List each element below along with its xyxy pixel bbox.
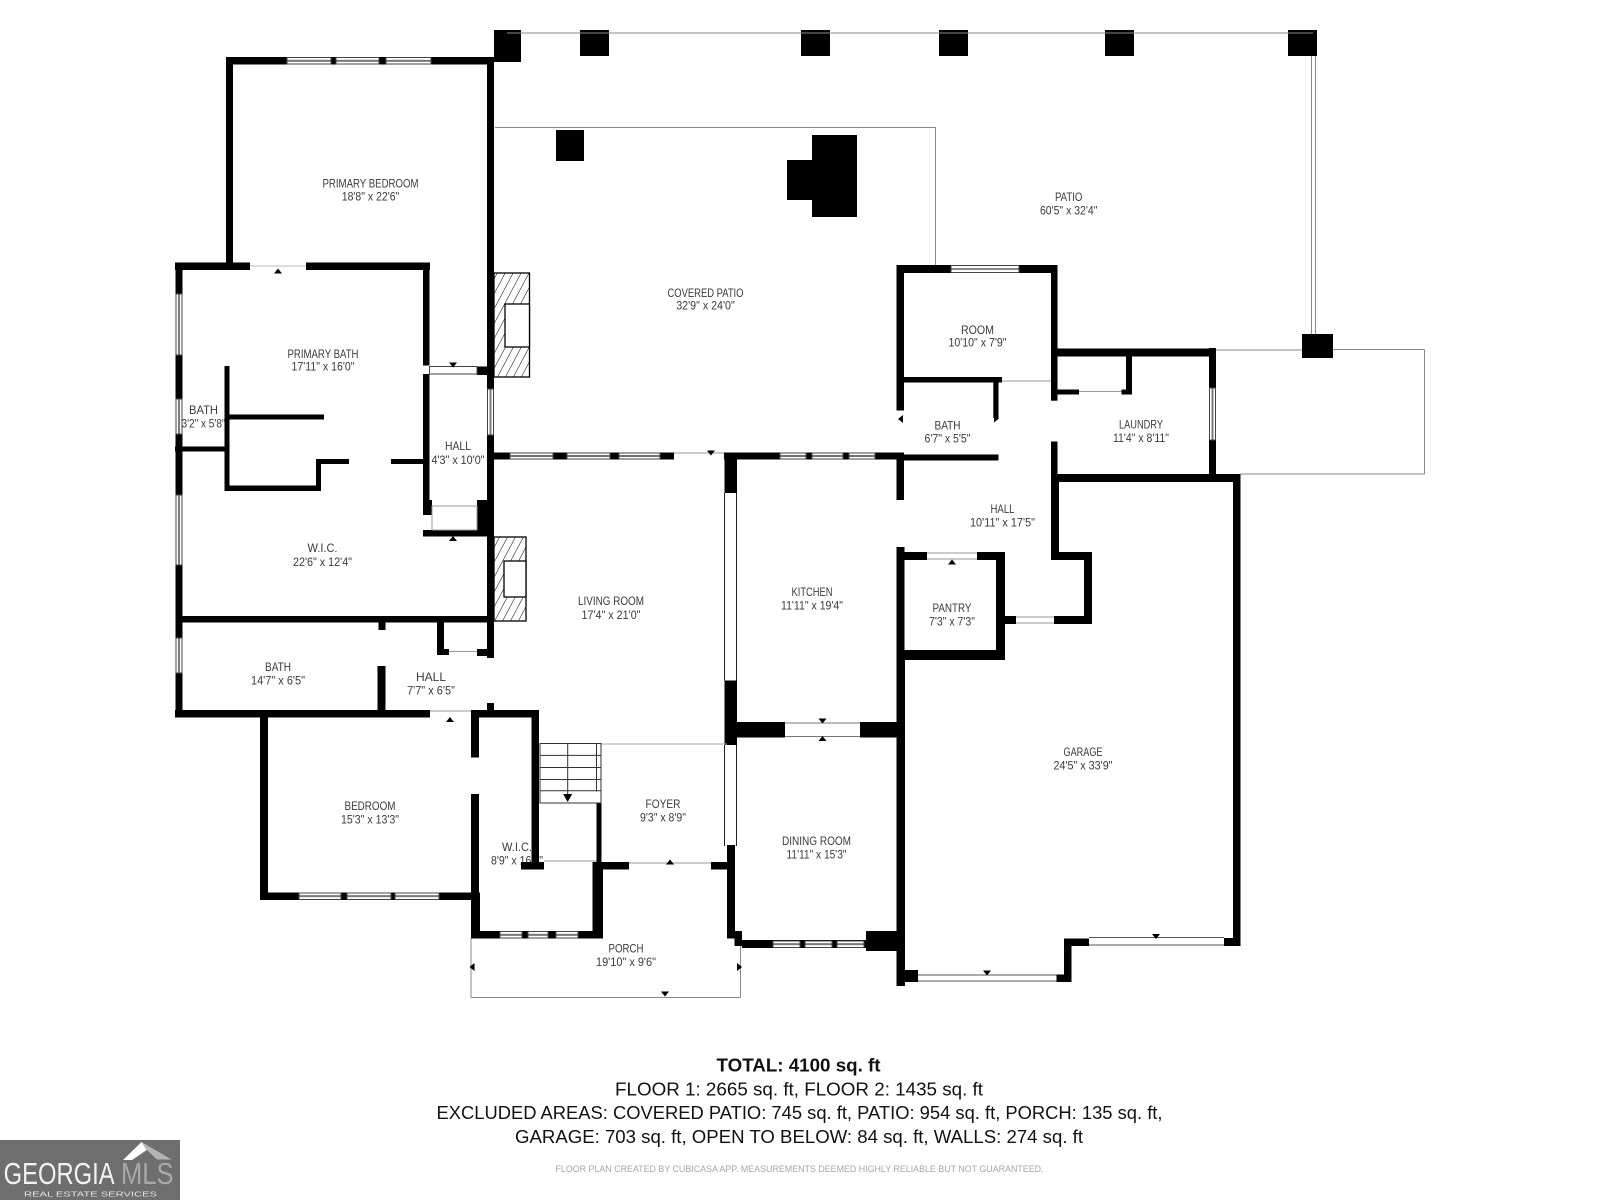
- svg-text:DINING ROOM: DINING ROOM: [782, 835, 851, 848]
- svg-text:24'5" x 33'9": 24'5" x 33'9": [1054, 760, 1113, 773]
- svg-text:11'11" x 15'3": 11'11" x 15'3": [787, 849, 847, 862]
- svg-text:BEDROOM: BEDROOM: [345, 800, 396, 813]
- svg-text:LIVING ROOM: LIVING ROOM: [578, 595, 644, 608]
- svg-text:PRIMARY BATH: PRIMARY BATH: [288, 348, 359, 361]
- svg-text:GARAGE: GARAGE: [1064, 746, 1103, 759]
- svg-text:9'3" x 8'9": 9'3" x 8'9": [640, 812, 686, 825]
- svg-text:7'3" x 7'3": 7'3" x 7'3": [929, 616, 975, 629]
- svg-text:60'5" x 32'4": 60'5" x 32'4": [1040, 205, 1098, 218]
- svg-text:18'8" x 22'6": 18'8" x 22'6": [342, 191, 400, 204]
- svg-text:ROOM: ROOM: [961, 324, 994, 337]
- svg-text:EXCLUDED AREAS: COVERED PATIO:: EXCLUDED AREAS: COVERED PATIO: 745 sq. f…: [437, 1103, 1163, 1123]
- svg-text:COVERED PATIO: COVERED PATIO: [668, 287, 744, 300]
- svg-text:LAUNDRY: LAUNDRY: [1119, 419, 1163, 432]
- svg-text:14'7" x 6'5": 14'7" x 6'5": [251, 675, 305, 688]
- svg-text:15'3" x 13'3": 15'3" x 13'3": [341, 814, 399, 827]
- svg-text:PORCH: PORCH: [609, 943, 644, 956]
- svg-text:6'7" x 5'5": 6'7" x 5'5": [925, 433, 971, 446]
- svg-text:10'11" x 17'5": 10'11" x 17'5": [970, 517, 1035, 530]
- svg-text:BATH: BATH: [265, 661, 291, 674]
- svg-text:7'7" x 6'5": 7'7" x 6'5": [407, 685, 455, 698]
- svg-text:HALL: HALL: [445, 440, 471, 453]
- svg-text:HALL: HALL: [991, 503, 1015, 516]
- svg-text:17'4" x 21'0": 17'4" x 21'0": [582, 609, 641, 622]
- svg-text:19'10" x 9'6": 19'10" x 9'6": [596, 956, 656, 969]
- svg-text:11'4" x 8'11": 11'4" x 8'11": [1113, 432, 1169, 445]
- svg-text:FLOOR PLAN CREATED BY CUBICASA: FLOOR PLAN CREATED BY CUBICASA APP. MEAS…: [556, 1164, 1044, 1175]
- svg-text:REAL ESTATE SERVICES: REAL ESTATE SERVICES: [24, 1190, 157, 1199]
- svg-text:HALL: HALL: [416, 671, 447, 684]
- svg-text:4'3" x 10'0": 4'3" x 10'0": [432, 454, 485, 467]
- svg-text:17'11" x 16'0": 17'11" x 16'0": [292, 361, 355, 374]
- svg-text:KITCHEN: KITCHEN: [792, 586, 833, 599]
- svg-text:PANTRY: PANTRY: [933, 602, 972, 615]
- svg-text:BATH: BATH: [935, 420, 961, 433]
- svg-text:32'9" x 24'0": 32'9" x 24'0": [676, 300, 735, 313]
- svg-text:11'11" x 19'4": 11'11" x 19'4": [781, 600, 843, 613]
- svg-text:3'2" x 5'8": 3'2" x 5'8": [182, 418, 226, 431]
- svg-text:W.I.C.: W.I.C.: [502, 841, 532, 854]
- svg-text:MLS: MLS: [121, 1157, 174, 1191]
- svg-text:22'6" x 12'4": 22'6" x 12'4": [293, 556, 352, 569]
- svg-text:PATIO: PATIO: [1055, 191, 1083, 204]
- svg-text:FLOOR 1: 2665 sq. ft, FLOOR 2:: FLOOR 1: 2665 sq. ft, FLOOR 2: 1435 sq. …: [615, 1080, 983, 1100]
- svg-text:GEORGIA: GEORGIA: [4, 1157, 116, 1191]
- svg-text:GARAGE: 703 sq. ft, OPEN TO BE: GARAGE: 703 sq. ft, OPEN TO BELOW: 84 sq…: [515, 1127, 1083, 1147]
- svg-text:BATH: BATH: [189, 404, 218, 417]
- svg-text:PRIMARY BEDROOM: PRIMARY BEDROOM: [323, 178, 419, 191]
- svg-text:10'10" x 7'9": 10'10" x 7'9": [949, 337, 1007, 350]
- svg-text:W.I.C.: W.I.C.: [308, 542, 338, 555]
- svg-text:TOTAL: 4100 sq. ft: TOTAL: 4100 sq. ft: [717, 1056, 881, 1076]
- svg-text:FOYER: FOYER: [646, 798, 681, 811]
